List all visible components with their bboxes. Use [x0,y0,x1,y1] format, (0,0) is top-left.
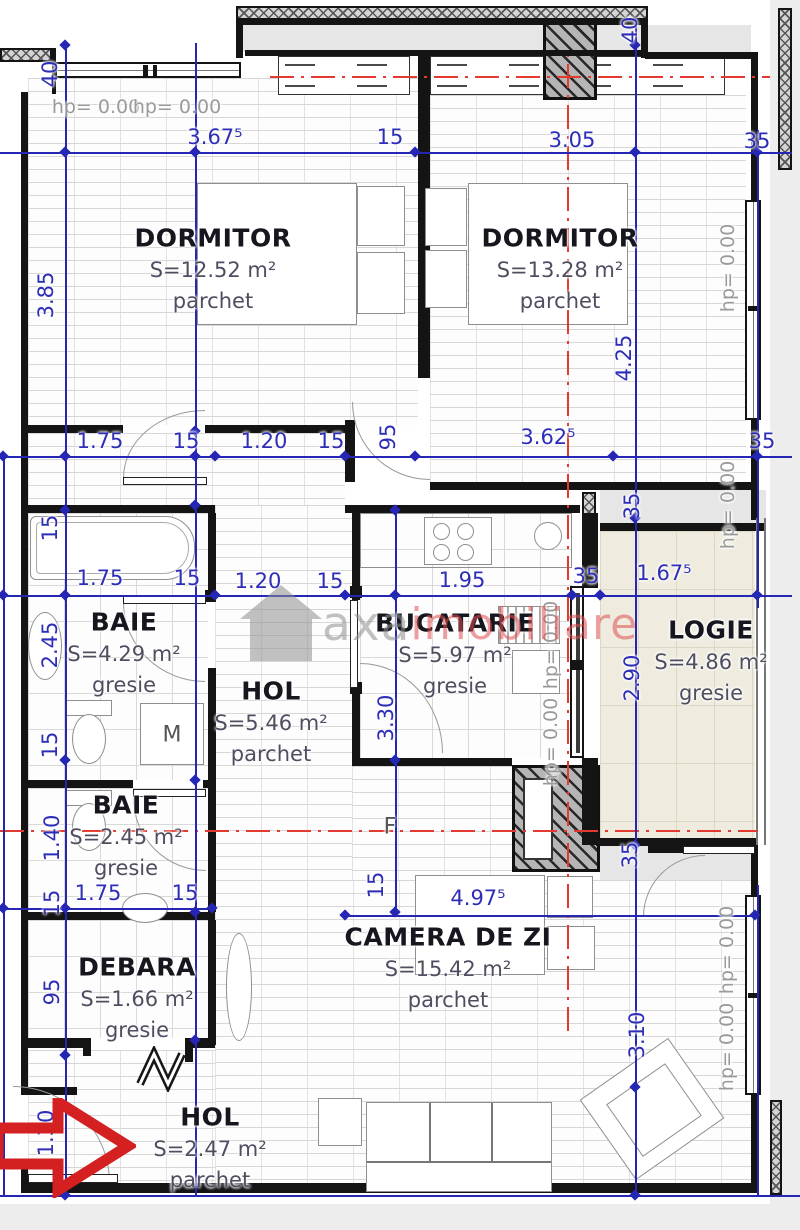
centerline-horizontal-top [270,76,770,78]
dim-label-7: 4.25 [612,335,636,382]
dim-label-31: 15 [172,881,199,905]
room-name-debara: DEBARA [78,953,196,982]
dim-label-4: 40 [38,61,62,88]
wall-debara-right [208,920,216,1045]
hp-label-1: hp= 0.00 [133,96,221,118]
misc-label-m: M [163,723,182,748]
dim-label-1: 15 [377,125,404,149]
centerline-vertical [567,56,569,1031]
floor-plan-canvas: 3.67⁵153.053540403.854.251.75151.2015953… [0,0,800,1230]
dim-label-8: 1.75 [77,429,124,453]
dim-label-12: 95 [376,424,400,451]
burner [457,523,474,540]
dim-label-0: 3.67⁵ [187,125,242,149]
dim-label-9: 15 [173,429,200,453]
room-floor-baie-1: gresie [92,673,156,697]
wall-top-right [645,52,758,59]
tv-cabinet-2 [547,926,595,970]
wall-kitchen-top [345,505,580,513]
sofa-seat-line [367,1161,551,1163]
dim-label-16: 35 [620,493,644,520]
dim-marker [0,902,9,913]
room-floor-dormitor-2: parchet [520,289,600,313]
dim-label-32: 35 [618,842,642,869]
room-name-hol-2: HOL [180,1103,240,1132]
room-name-baie-2: BAIE [93,791,160,820]
window-mullion [143,65,148,76]
window-top-left [55,62,241,78]
dim-label-2: 3.05 [549,128,596,152]
dim-line [0,152,792,154]
dim-label-10: 1.20 [241,429,288,453]
logie-parapet-line [764,518,766,845]
dim-line [757,885,759,1197]
dim-label-26: 3.30 [374,695,398,742]
dim-label-17: 1.75 [77,566,124,590]
wall-logie-top [600,523,766,531]
pillow [357,186,405,246]
watermark-brand-gray: axa [322,597,410,652]
room-area-baie-1: S=4.29 m² [67,642,180,666]
window-dormitor-2 [745,200,761,420]
tv-cabinet [547,876,593,918]
hp-label-0: hp= 0.00 [52,96,140,118]
room-area-baie-2: S=2.45 m² [69,825,182,849]
side-table [318,1098,362,1146]
window-glass-line [57,70,239,71]
dim-line [0,908,215,910]
dim-label-5: 40 [618,17,642,44]
dim-label-13: 3.62⁵ [520,425,575,449]
dim-line [195,43,197,1195]
dim-label-23: 1.67⁵ [636,561,691,585]
gray-band-top-right [648,25,751,55]
wall-baie2-right [208,788,216,912]
wall-terrace-left [236,18,243,58]
floor-living-upper [352,766,512,880]
dim-label-15: 15 [38,515,62,542]
room-floor-bucatarie: gresie [423,674,487,698]
kitchen-sink [534,522,562,550]
dim-label-14: 35 [749,429,776,453]
hp-label-7: hp= 0.00 [716,1003,738,1091]
radiator [226,933,252,1041]
dim-marker [59,39,70,50]
wall-baie2-top [21,780,133,788]
wall-baie1-right-a [208,513,216,598]
wall-kitchen-bottom [352,758,512,766]
stove [424,517,492,565]
dim-label-28: 1.40 [40,815,64,862]
dim-label-3: 35 [744,129,771,153]
room-area-hol-1: S=5.46 m² [214,711,327,735]
room-name-hol-1: HOL [241,677,301,706]
room-area-hol-2: S=2.47 m² [153,1137,266,1161]
dim-label-24: 2.45 [38,622,62,669]
door-leaf-camera-de-zi [683,846,755,854]
watermark-brand-red: imobiliare [410,599,638,650]
burner [457,544,474,561]
burner [433,523,450,540]
hp-label-5: hp= 0.00 [540,698,562,786]
dim-marker [0,450,9,461]
room-area-dormitor-2: S=13.28 m² [497,258,624,282]
entrance-arrow-icon [0,1098,136,1198]
room-floor-camera-de-zi: parchet [408,988,488,1012]
sofa [366,1102,552,1192]
dim-label-36: 3.10 [625,1012,649,1059]
pillow [425,188,467,246]
dim-label-11: 15 [318,429,345,453]
dim-line [65,42,67,1197]
door-leaf-baie-1 [123,596,206,604]
hp-label-2: hp= 0.00 [717,224,739,312]
toilet-bowl [72,714,106,764]
room-floor-debara: gresie [105,1018,169,1042]
wall-bedroom-top [245,50,648,56]
room-area-camera-de-zi: S=15.42 m² [385,957,512,981]
window-mullion [153,65,157,76]
misc-label-f: F [384,815,397,840]
room-name-dormitor-1: DORMITOR [135,224,292,253]
wall-terrace-top [236,18,648,25]
niche-dashes [285,64,403,66]
watermark-house-icon [240,585,322,663]
niche-dashes [285,85,403,87]
hp-label-6: hp= 0.00 [716,906,738,994]
room-floor-hol-1: parchet [231,742,311,766]
sofa-divider [429,1103,431,1161]
wall-baie2-top-stub [203,780,215,788]
room-name-dormitor-2: DORMITOR [482,224,639,253]
wall-living-top [648,845,683,853]
dim-line [0,456,792,458]
hp-label-3: hp= 0.00 [717,461,739,549]
wall-left-outer [21,92,28,1087]
room-name-logie: LOGIE [668,616,754,645]
page-margin-right [770,0,800,1230]
watermark: axa imobiliare [240,585,638,663]
dim-line [757,130,759,608]
dim-label-30: 1.75 [75,881,122,905]
dim-line [345,915,755,917]
hatch-band-right-bottom [770,1100,782,1195]
room-floor-logie: gresie [679,681,743,705]
room-floor-dormitor-1: parchet [173,289,253,313]
room-area-dormitor-1: S=12.52 m² [150,258,277,282]
room-name-camera-de-zi: CAMERA DE ZI [345,923,552,952]
dim-label-34: 15 [364,872,388,899]
pillow [425,250,467,308]
burner [433,544,450,561]
sofa-divider [491,1103,493,1161]
column-flue [523,778,553,860]
dim-marker [0,589,9,600]
room-floor-hol-2: parchet [170,1168,250,1192]
armchair-seat [606,1063,702,1157]
hatch-band-right-top [778,8,792,170]
dim-label-18: 15 [174,566,201,590]
page-margin-bottom [0,1204,800,1230]
wall-baie1-top [21,505,215,513]
room-area-debara: S=1.66 m² [80,987,193,1011]
room-floor-baie-2: gresie [94,856,158,880]
wall-kitchen-left-b [352,690,360,765]
window-camera-de-zi [745,895,761,1095]
zigzag-symbol-icon [136,1046,196,1092]
dim-label-27: 15 [38,732,62,759]
dim-label-33: 95 [40,979,64,1006]
wall-dormitor2-bottom [430,482,600,490]
dim-label-29: 15 [40,890,64,917]
dim-label-35: 4.97⁵ [450,886,505,910]
pillow [357,252,405,314]
column-top [543,22,597,100]
room-name-baie-1: BAIE [91,608,158,637]
wall-jamb [83,1038,91,1056]
dim-label-6: 3.85 [34,272,58,319]
wall-debara-bottom-left [21,1038,83,1048]
dim-line [3,456,5,1196]
room-area-logie: S=4.86 m² [654,650,767,674]
